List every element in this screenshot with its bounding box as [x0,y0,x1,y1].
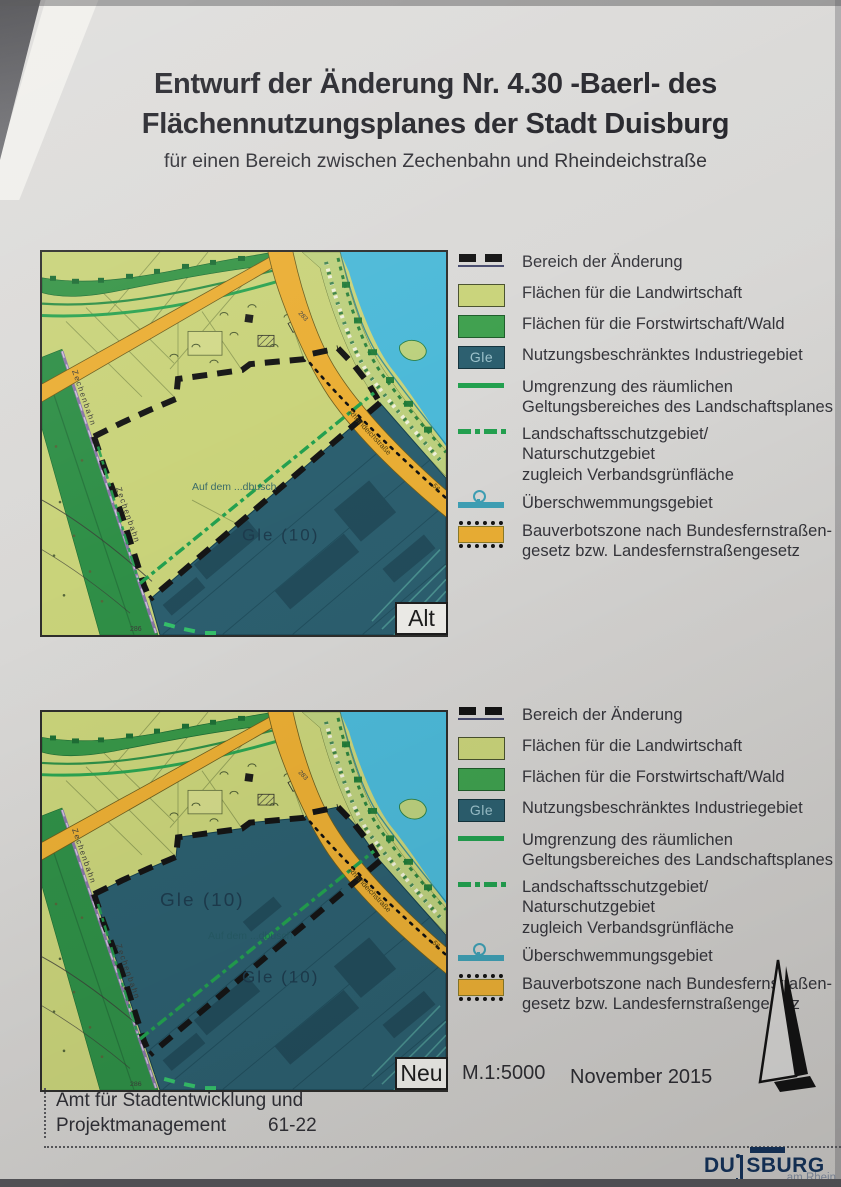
department-line-1: Amt für Stadtentwicklung und [56,1088,317,1113]
photo-bottom-edge [0,1179,841,1187]
department-line-2: Projektmanagement61-22 [56,1113,317,1138]
legend-label: Landschaftsschutzgebiet/ Naturschutzgebi… [522,424,840,486]
legend-item-industry: Gle Nutzungsbeschränktes Industriegebiet [458,345,840,369]
sail-mark-icon [748,956,824,1096]
legend-label: Nutzungsbeschränktes Industriegebiet [522,798,803,819]
no-build-symbol [458,974,504,1001]
landscape-plan-line-symbol [458,383,504,388]
title-line-1: Entwurf der Änderung Nr. 4.30 -Baerl- de… [58,64,813,104]
legend-item-forest: Flächen für die Forstwirtschaft/Wald [458,767,840,791]
gle-badge: Gle [470,349,493,365]
legend-item-agriculture: Flächen für die Landwirtschaft [458,283,840,307]
gle-label: Gle (10) [242,967,319,986]
legend-label: Bereich der Änderung [522,705,683,726]
department-block: Amt für Stadtentwicklung und Projektmana… [44,1088,317,1138]
gle-label: Gle (10) [160,889,245,910]
map-panel-neu: Gle (10) Gle (10) Auf dem ...dbusch Zech… [40,710,448,1092]
subtitle: für einen Bereich zwischen Zechenbahn un… [58,149,813,173]
legend-item-landscape-plan: Umgrenzung des räumlichenGeltungsbereich… [458,830,840,871]
legend-item-no-build-zone: Bauverbotszone nach Bundesfernstraßen-ge… [458,521,840,562]
legend-item-landscape-plan: Umgrenzung des räumlichenGeltungsbereich… [458,377,840,418]
change-boundary-symbol [458,707,506,721]
legend-label: Bereich der Änderung [522,252,683,273]
legend-item-protection-area: Landschaftsschutzgebiet/ Naturschutzgebi… [458,877,840,939]
logo-bar [750,1147,785,1153]
forest-swatch [458,315,505,338]
protection-dashdot-symbol [458,429,506,434]
gle-label: Gle (10) [242,526,319,545]
legend-item-agriculture: Flächen für die Landwirtschaft [458,736,840,760]
legend-label: Umgrenzung des räumlichenGeltungsbereich… [522,377,833,418]
field-name-label: Auf dem ...dbusch [192,482,277,493]
field-name-label: Auf dem ...dbusch [208,931,293,942]
flood-symbol [458,943,506,965]
change-boundary-symbol [458,254,506,268]
agriculture-swatch [458,284,505,307]
legend-item-industry: Gle Nutzungsbeschränktes Industriegebiet [458,798,840,822]
map-scale: M.1:5000 [462,1062,545,1085]
landscape-plan-line-symbol [458,836,504,841]
protection-dashdot-symbol [458,882,506,887]
logo-prefix: DU [704,1154,735,1178]
map-neu-artwork: Gle (10) Gle (10) Auf dem ...dbusch Zech… [42,712,446,1090]
legend-item-protection-area: Landschaftsschutzgebiet/ Naturschutzgebi… [458,424,840,486]
gle-badge: Gle [470,802,493,818]
photo-top-edge [0,0,841,6]
legend-item-change-area: Bereich der Änderung [458,705,840,726]
title-line-2: Flächennutzungsplanes der Stadt Duisburg [58,104,813,144]
no-build-symbol [458,521,504,548]
legend-item-flood-area: Überschwemmungsgebiet [458,490,840,514]
legend-label: Flächen für die Forstwirtschaft/Wald [522,767,785,788]
legend-label: Flächen für die Landwirtschaft [522,283,742,304]
legend-item-change-area: Bereich der Änderung [458,252,840,273]
map-panel-alt: Gle (10) Auf dem ...dbusch Zechenbahn Ze… [40,250,448,637]
legend-label: Überschwemmungsgebiet [522,946,713,967]
legend-item-forest: Flächen für die Forstwirtschaft/Wald [458,314,840,338]
flood-symbol [458,490,506,512]
legend-label: Umgrenzung des räumlichenGeltungsbereich… [522,830,833,871]
industry-swatch: Gle [458,799,505,822]
map-alt-artwork: Gle (10) Auf dem ...dbusch Zechenbahn Ze… [42,252,446,635]
legend-label: Landschaftsschutzgebiet/ Naturschutzgebi… [522,877,840,939]
legend-label: Flächen für die Landwirtschaft [522,736,742,757]
map-tag-alt: Alt [395,602,448,635]
legend-label: Bauverbotszone nach Bundesfernstraßen-ge… [522,521,832,562]
legend-alt: Bereich der Änderung Flächen für die Lan… [458,252,840,562]
photographed-plan-sheet: Entwurf der Änderung Nr. 4.30 -Baerl- de… [0,0,841,1187]
forest-swatch [458,768,505,791]
plan-date: November 2015 [570,1066,712,1089]
legend-label: Überschwemmungsgebiet [522,493,713,514]
legend-label: Flächen für die Forstwirtschaft/Wald [522,314,785,335]
map-tag-neu: Neu [395,1057,448,1090]
department-code: 61-22 [268,1115,317,1136]
title-block: Entwurf der Änderung Nr. 4.30 -Baerl- de… [58,64,813,173]
agriculture-swatch [458,737,505,760]
legend-label: Nutzungsbeschränktes Industriegebiet [522,345,803,366]
elevation-label: 286 [130,626,142,633]
industry-swatch: Gle [458,346,505,369]
